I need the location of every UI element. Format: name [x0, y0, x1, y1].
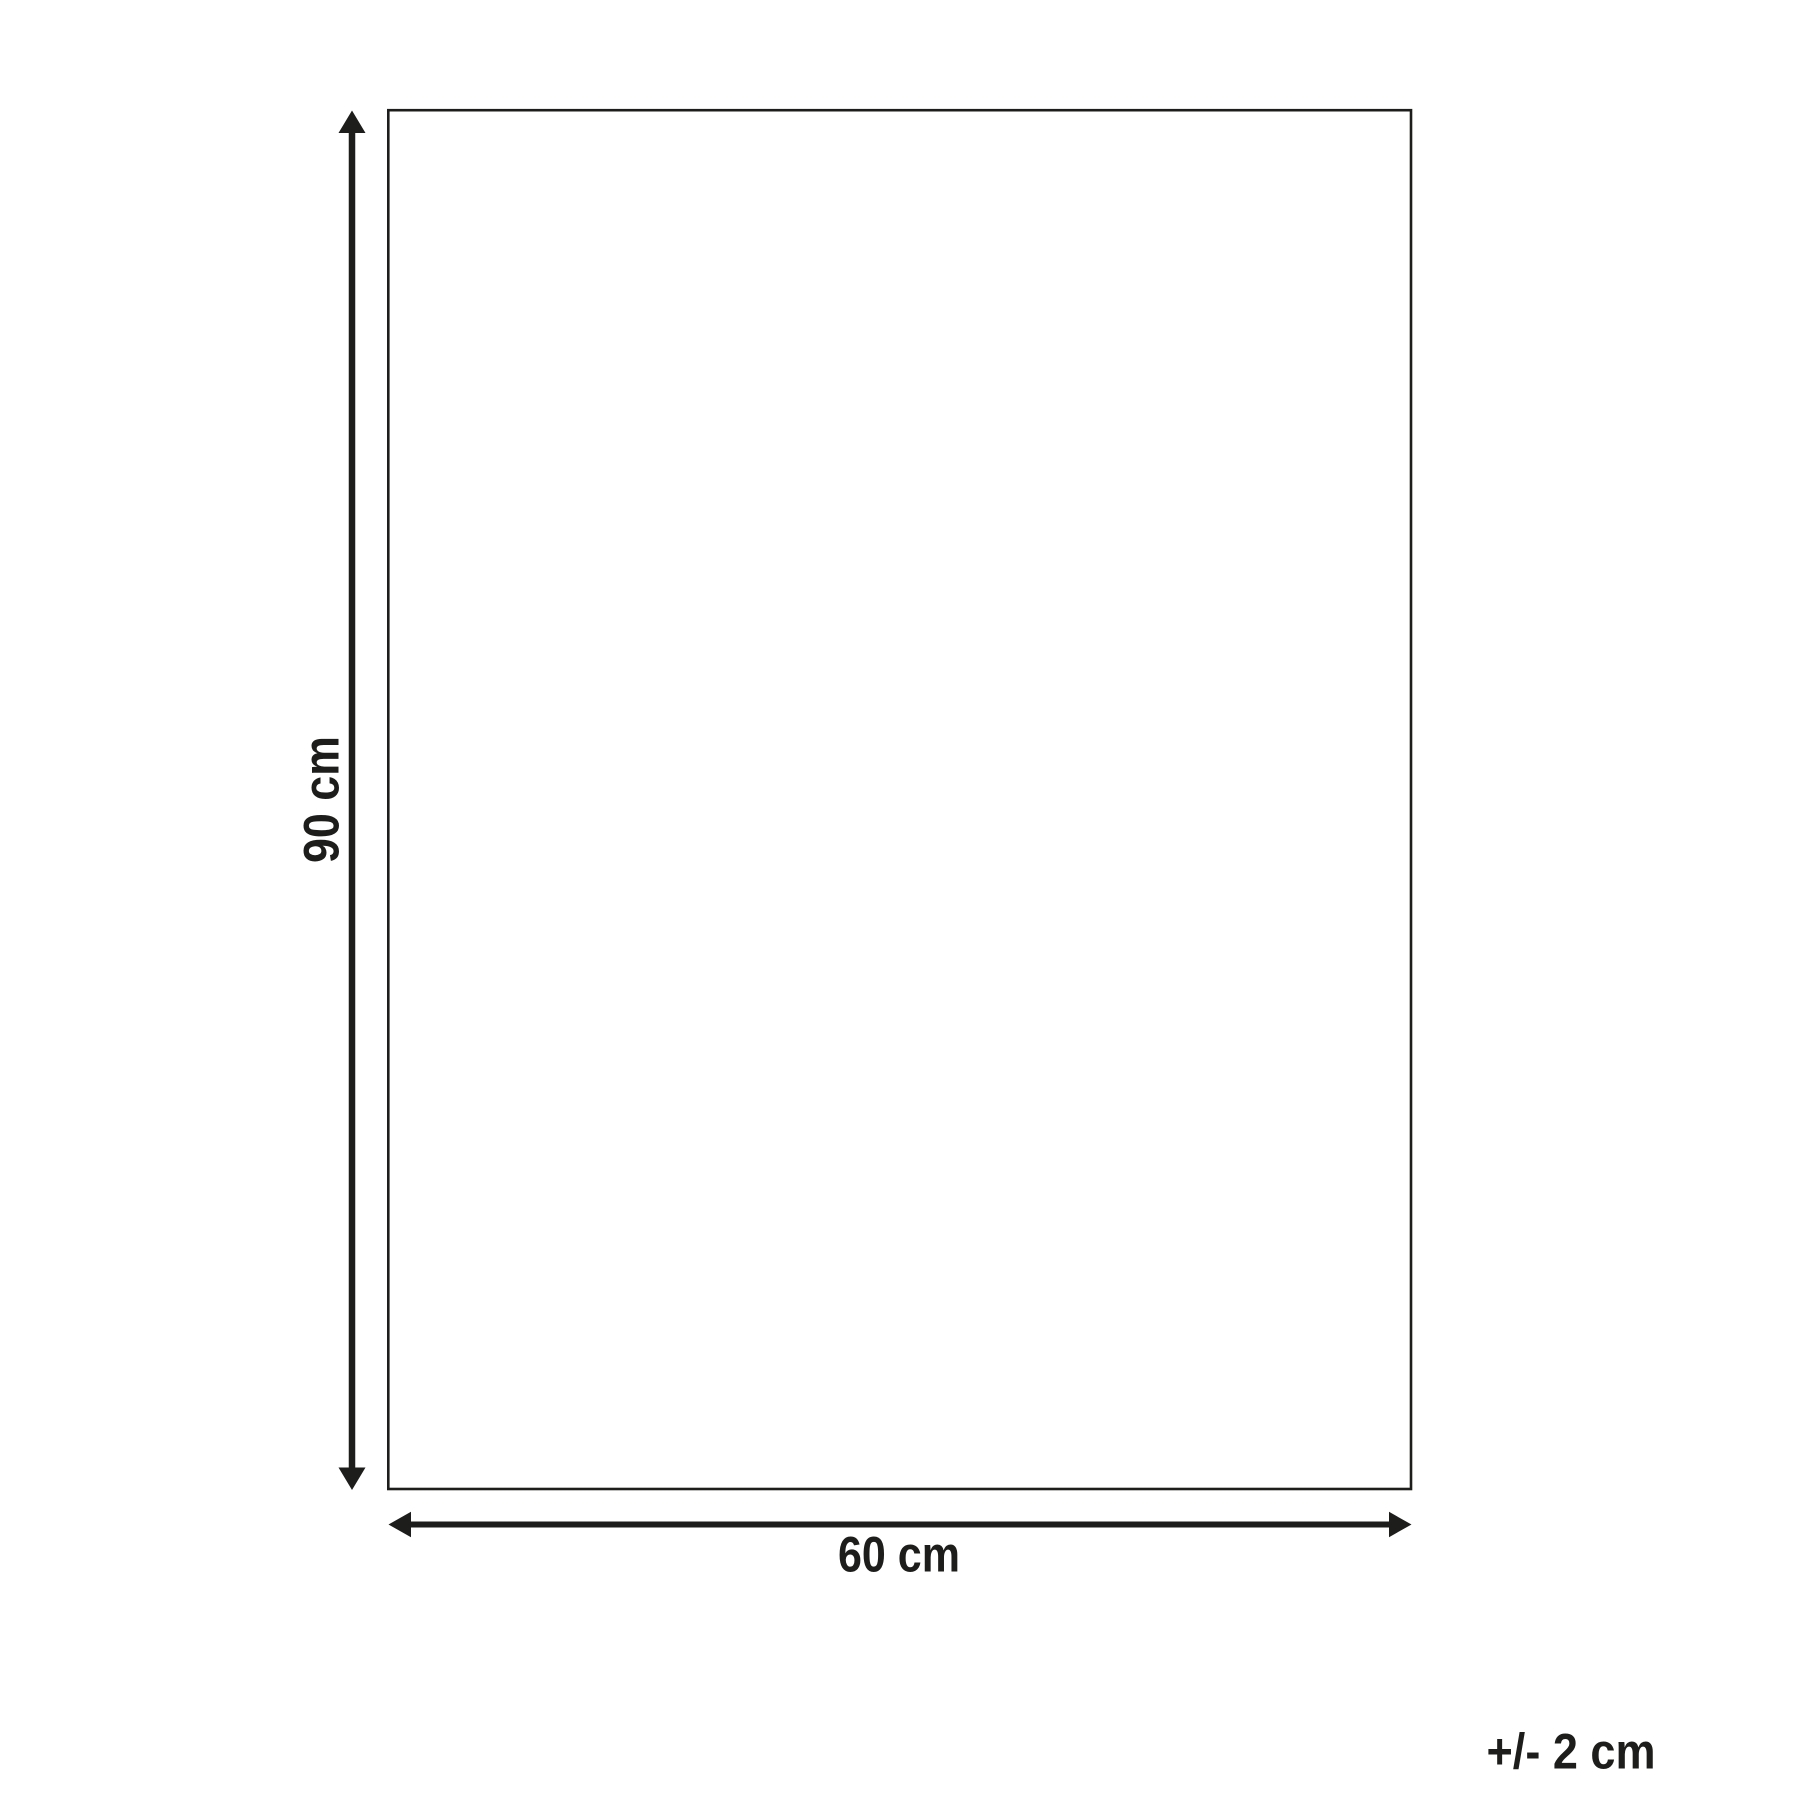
svg-text:60 cm: 60 cm	[838, 1527, 960, 1583]
svg-text:90 cm: 90 cm	[294, 736, 350, 863]
svg-text:+/- 2 cm: +/- 2 cm	[1487, 1724, 1656, 1780]
